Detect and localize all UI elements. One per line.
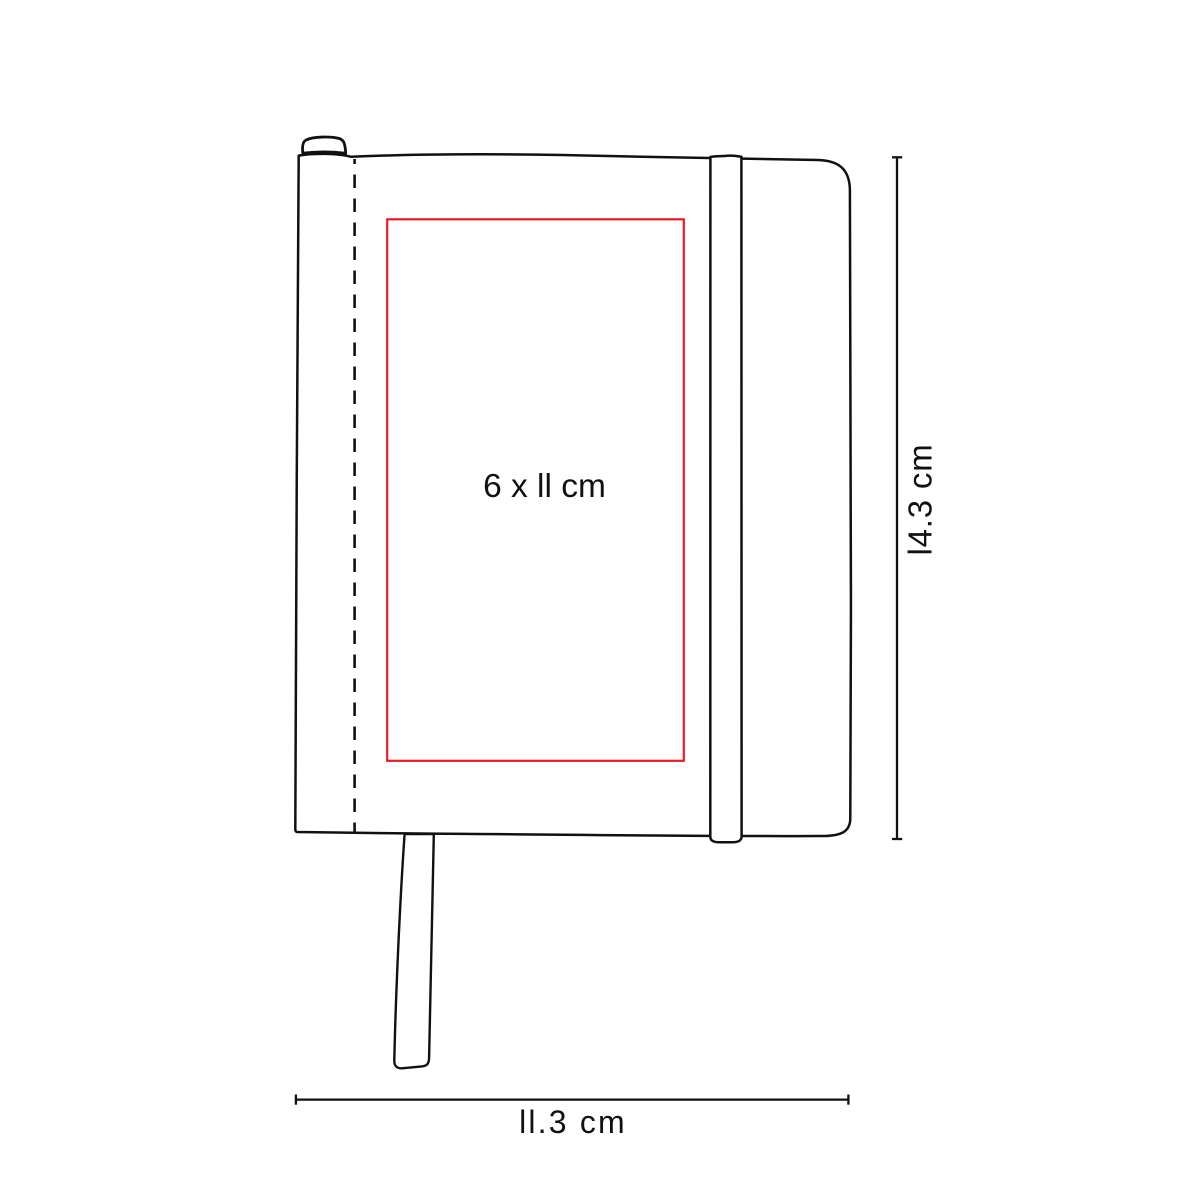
svg-text:6 x ll cm: 6 x ll cm [483,468,606,505]
svg-text:ll.3 cm: ll.3 cm [519,1104,627,1140]
svg-text:l4.3 cm: l4.3 cm [901,444,938,556]
